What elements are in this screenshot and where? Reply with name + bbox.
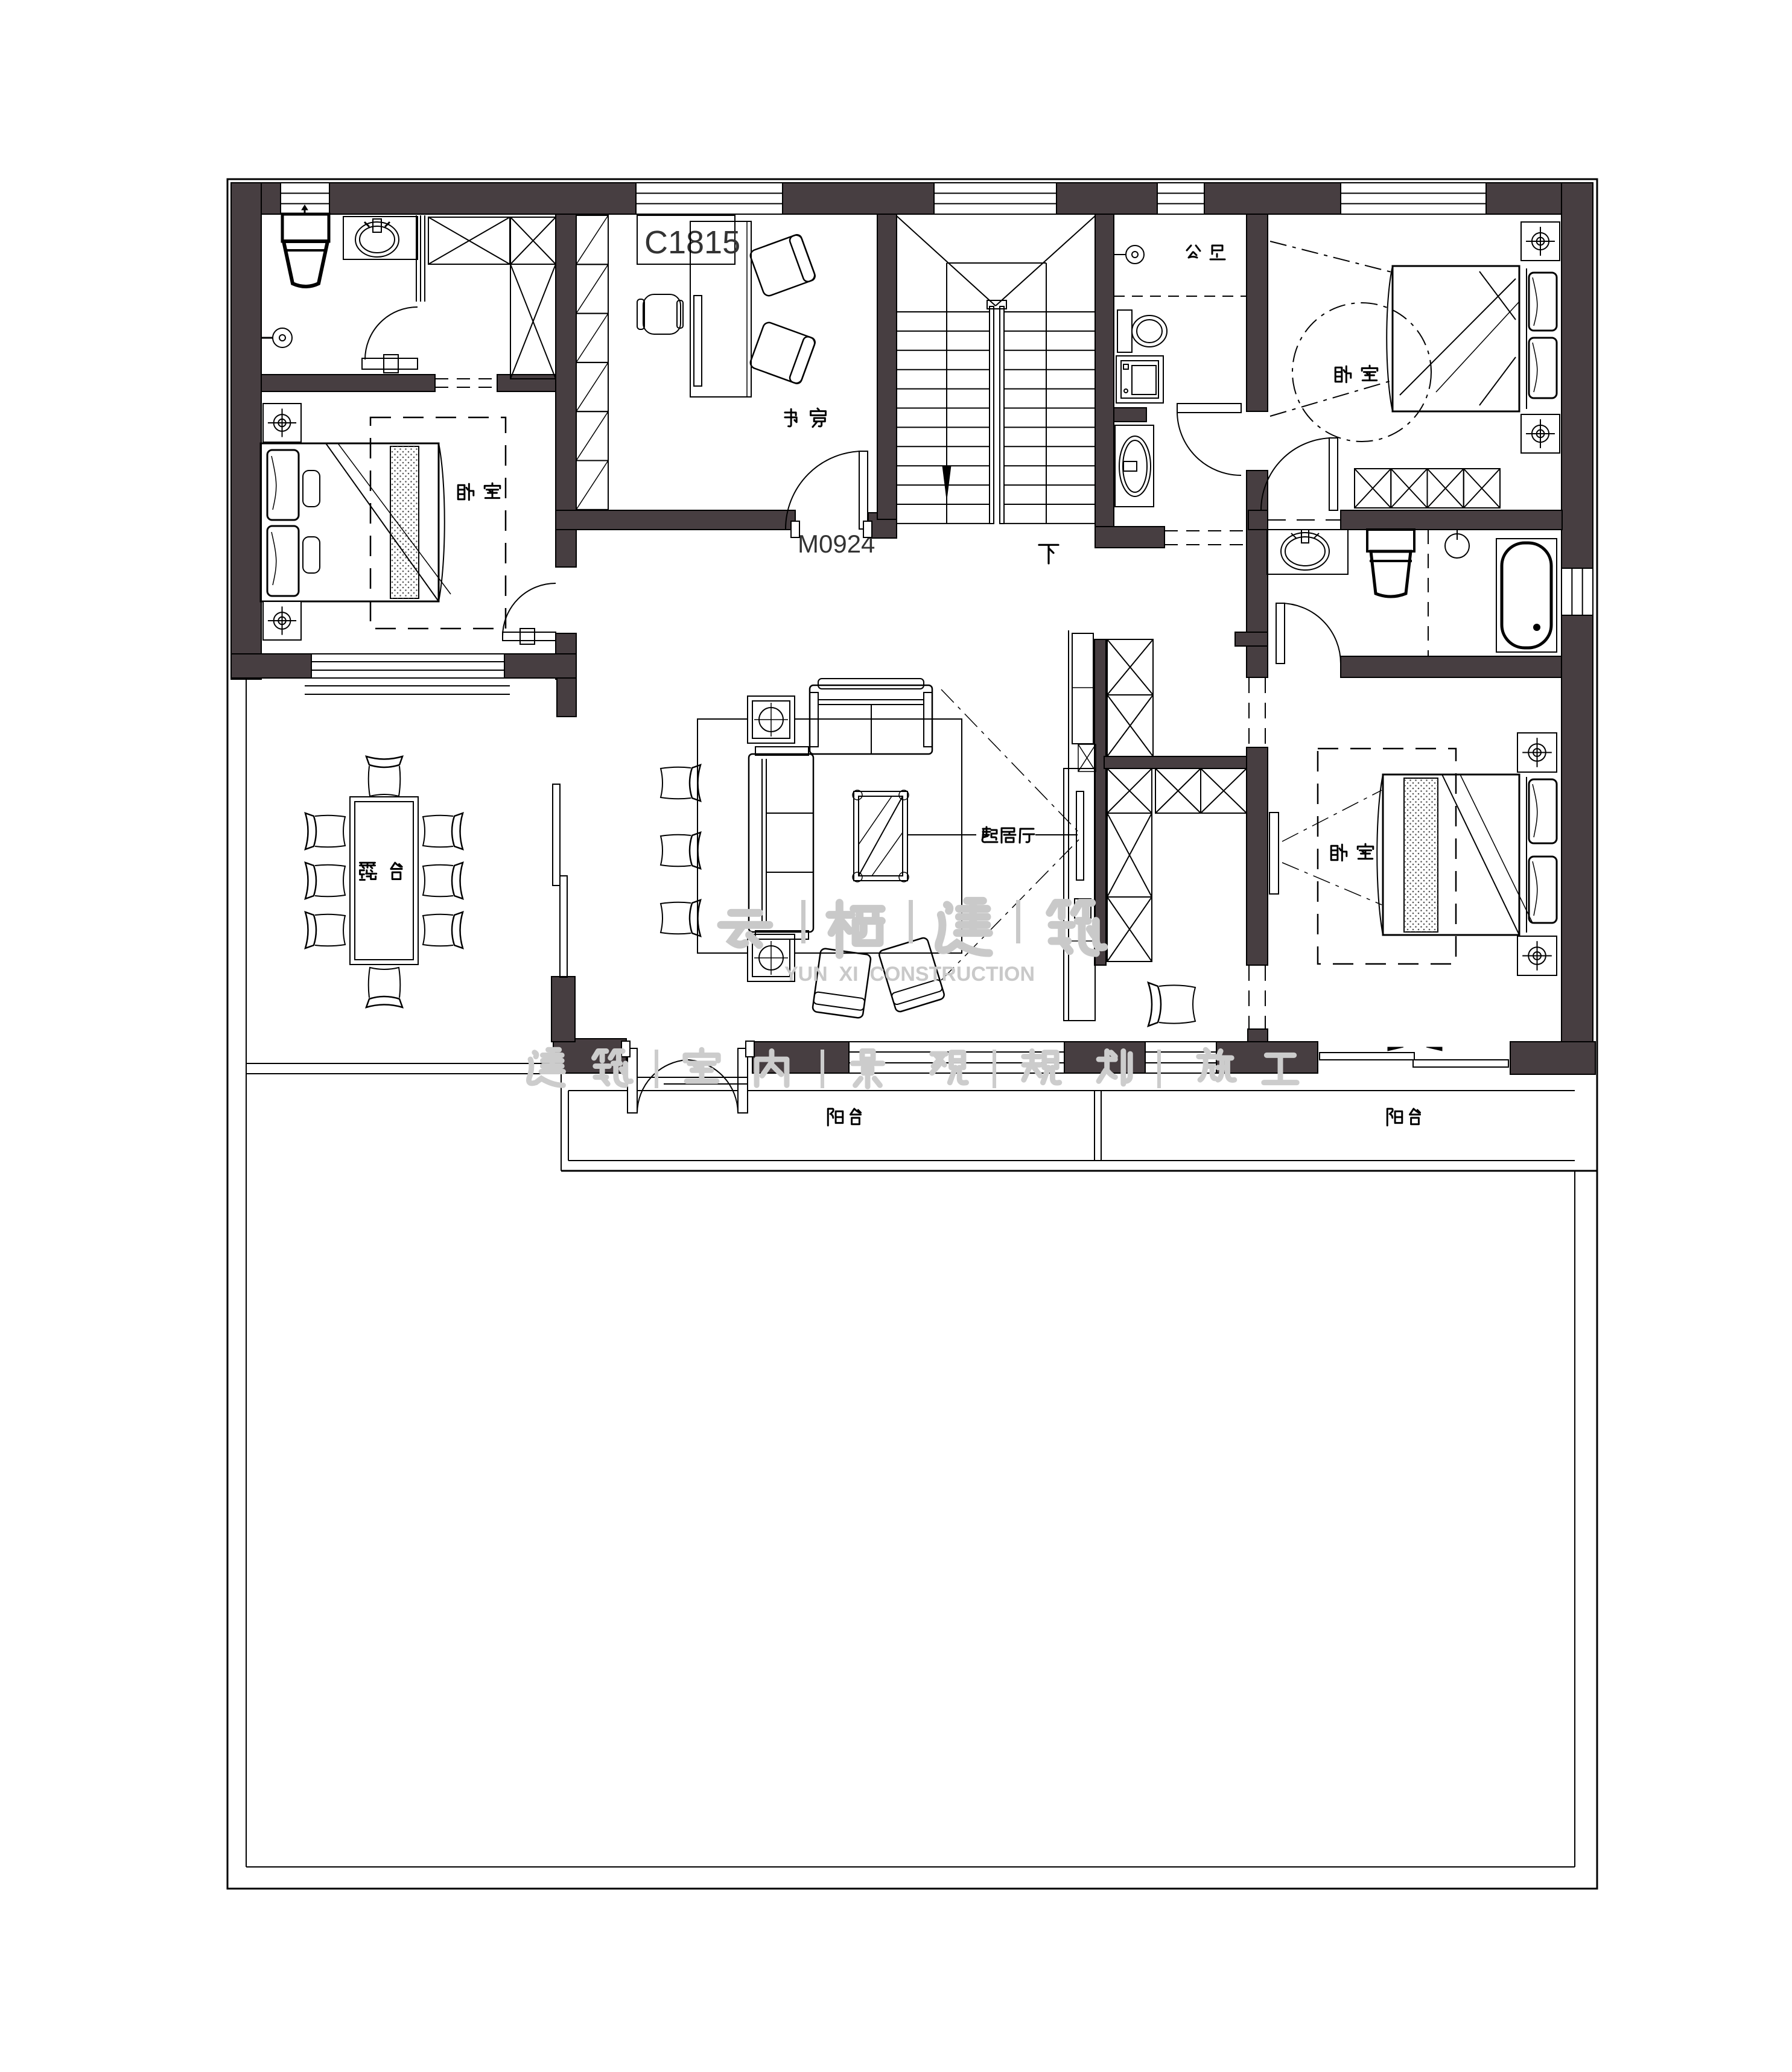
svg-text:C1815: C1815 [644,224,740,261]
svg-text:YUN XI CONSTRUCTION: YUN XI CONSTRUCTION [784,963,1035,986]
